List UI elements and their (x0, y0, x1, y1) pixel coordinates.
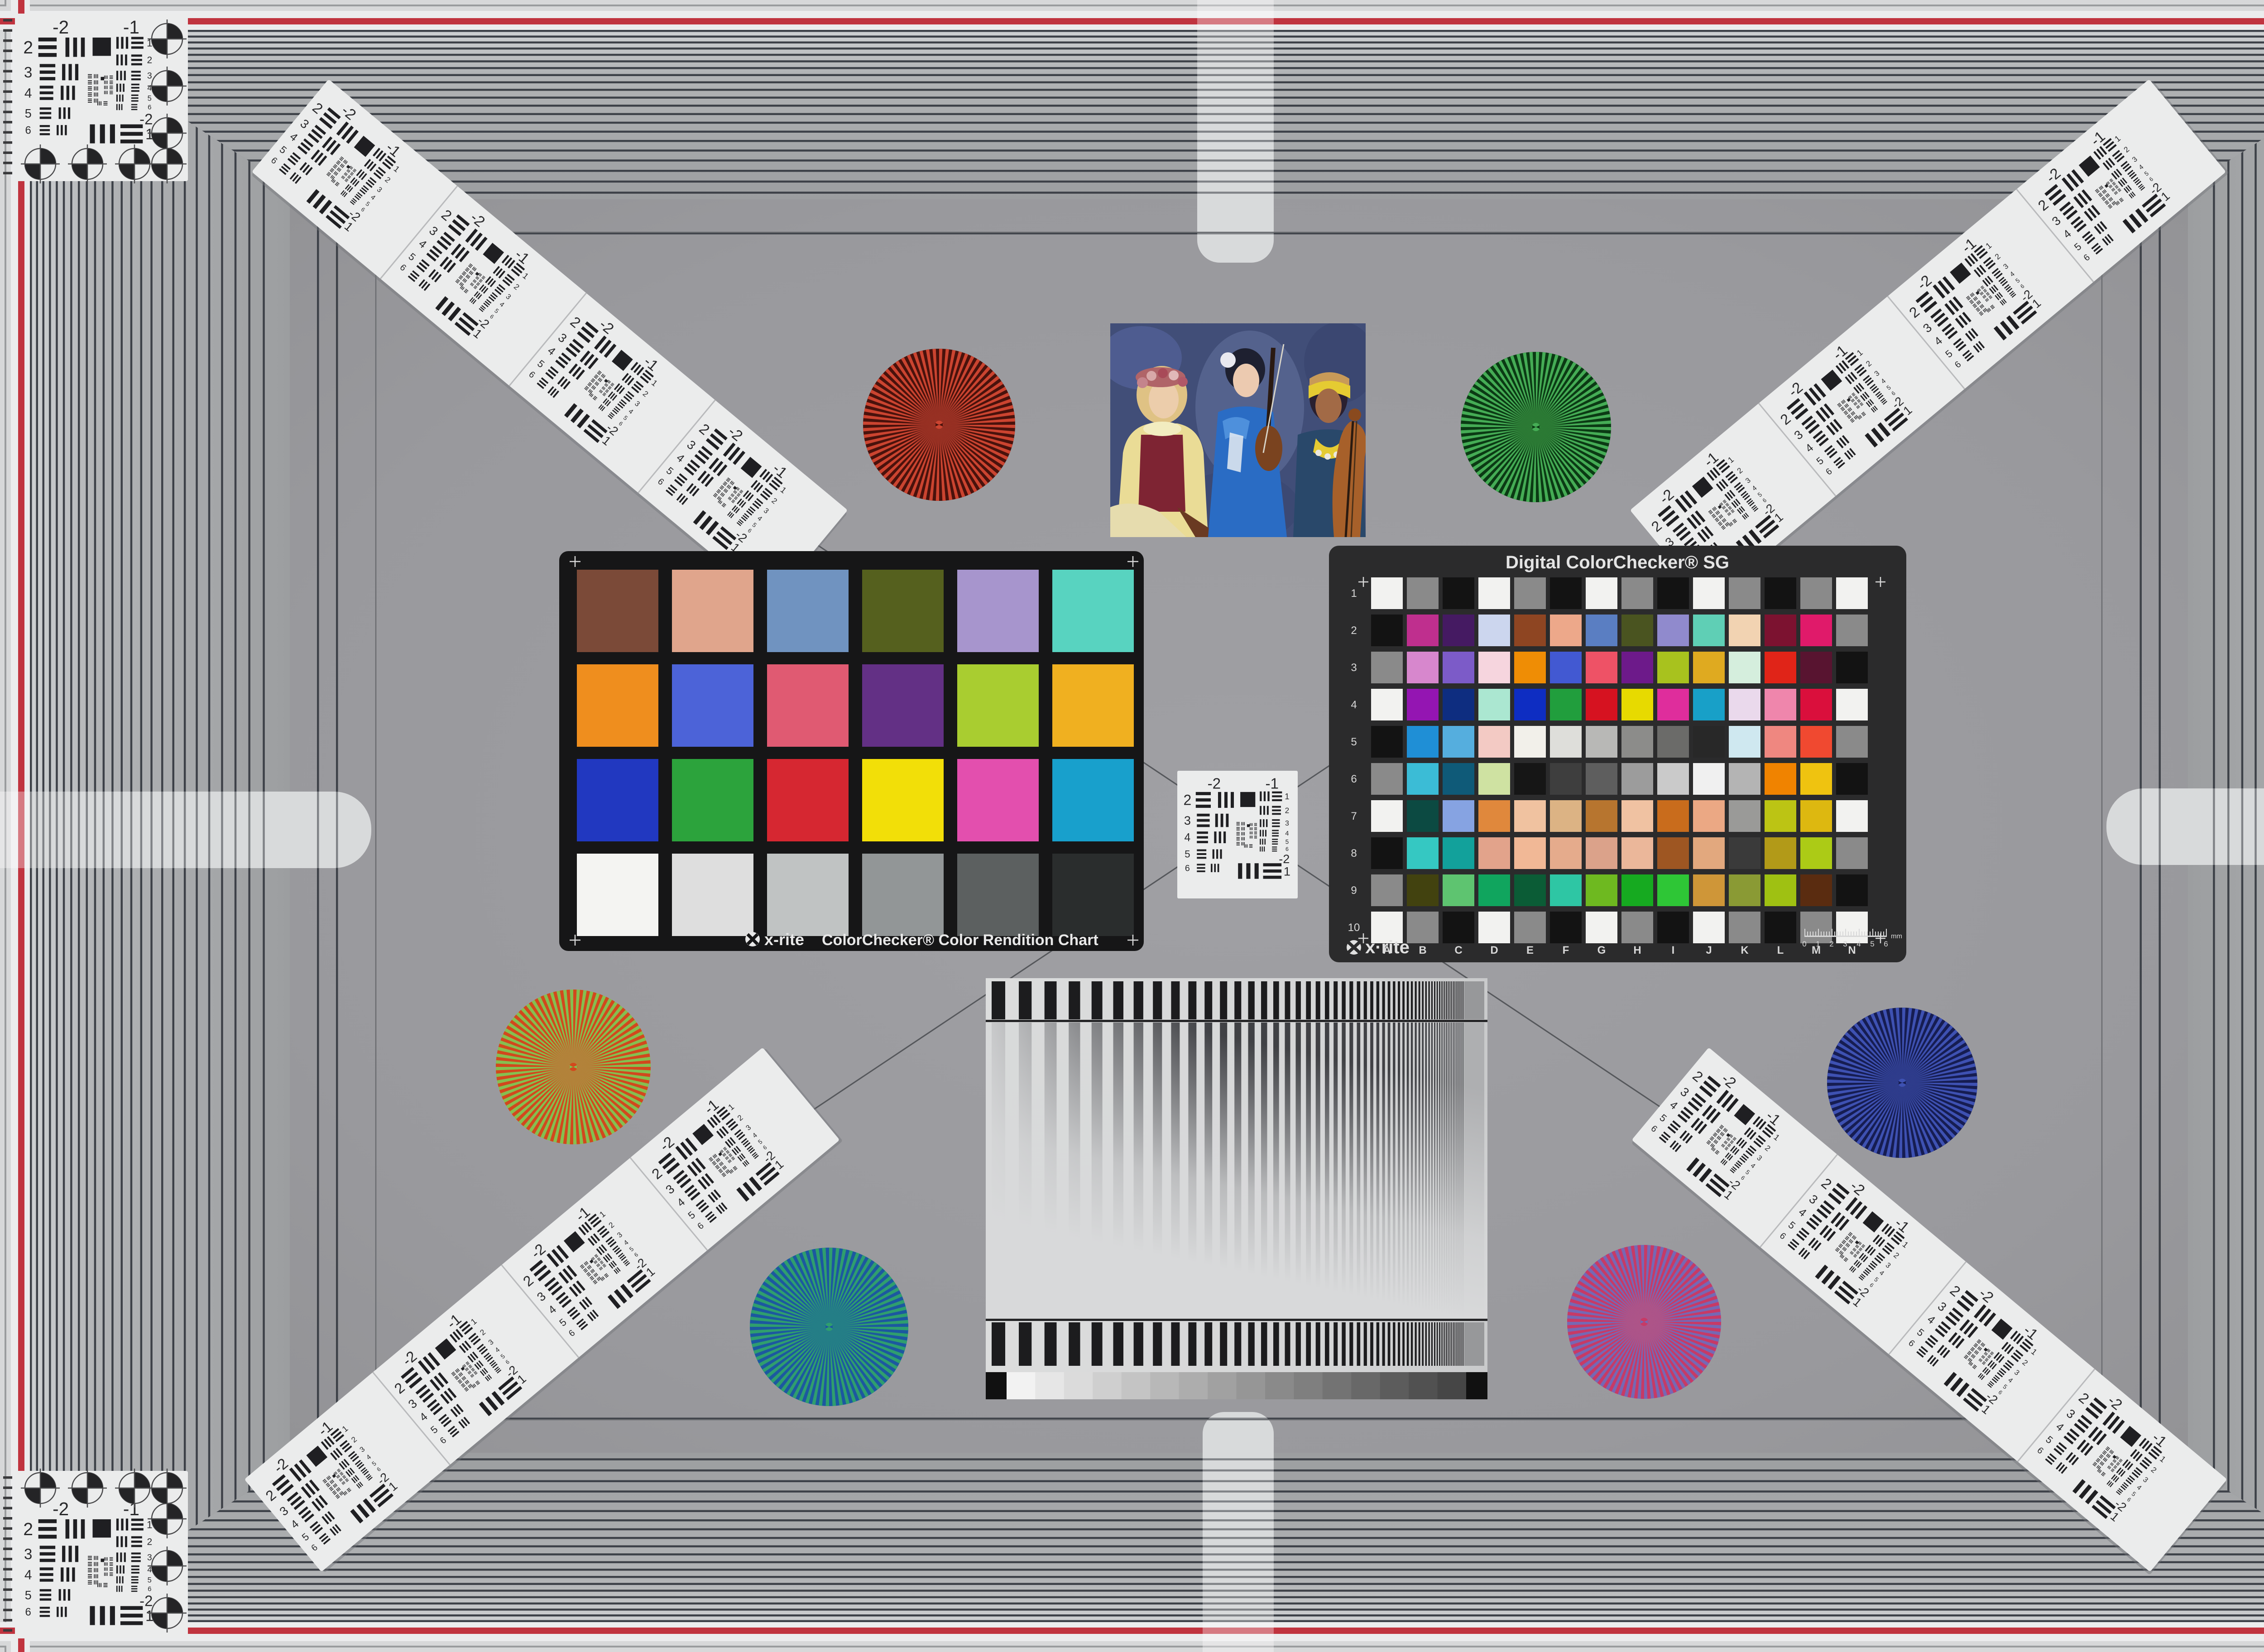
svg-text:E: E (1526, 944, 1534, 956)
svg-text:2: 2 (1829, 940, 1833, 948)
svg-text:1: 1 (1816, 940, 1820, 948)
svg-text:ColorChecker® Color Rendition: ColorChecker® Color Rendition Chart (822, 932, 1098, 949)
svg-text:J: J (1706, 944, 1712, 956)
svg-text:F: F (1563, 944, 1569, 956)
svg-text:D: D (1490, 944, 1498, 956)
svg-text:4: 4 (1856, 940, 1861, 948)
svg-text:mm: mm (1891, 932, 1902, 940)
svg-text:L: L (1777, 944, 1784, 956)
svg-text:0: 0 (1802, 940, 1806, 948)
svg-text:x·rite: x·rite (1365, 937, 1410, 957)
svg-text:Digital ColorChecker® SG: Digital ColorChecker® SG (1506, 552, 1729, 572)
svg-text:9: 9 (1351, 884, 1357, 897)
svg-text:1: 1 (1351, 587, 1357, 600)
svg-text:3: 3 (1843, 940, 1847, 948)
svg-text:5: 5 (1351, 736, 1357, 748)
svg-text:B: B (1419, 944, 1426, 956)
svg-text:I: I (1672, 944, 1675, 956)
svg-text:4: 4 (1351, 699, 1357, 711)
svg-text:2: 2 (1351, 624, 1357, 637)
svg-text:N: N (1848, 944, 1856, 956)
svg-text:K: K (1741, 944, 1749, 956)
svg-text:H: H (1633, 944, 1641, 956)
svg-text:6: 6 (1884, 940, 1888, 948)
svg-text:8: 8 (1351, 847, 1357, 860)
svg-text:3: 3 (1351, 662, 1357, 674)
svg-text:5: 5 (1870, 940, 1874, 948)
svg-text:10: 10 (1348, 922, 1360, 934)
svg-text:7: 7 (1351, 810, 1357, 822)
svg-text:x-rite: x-rite (764, 930, 804, 949)
svg-text:6: 6 (1351, 773, 1357, 785)
svg-text:G: G (1597, 944, 1606, 956)
svg-text:C: C (1454, 944, 1462, 956)
